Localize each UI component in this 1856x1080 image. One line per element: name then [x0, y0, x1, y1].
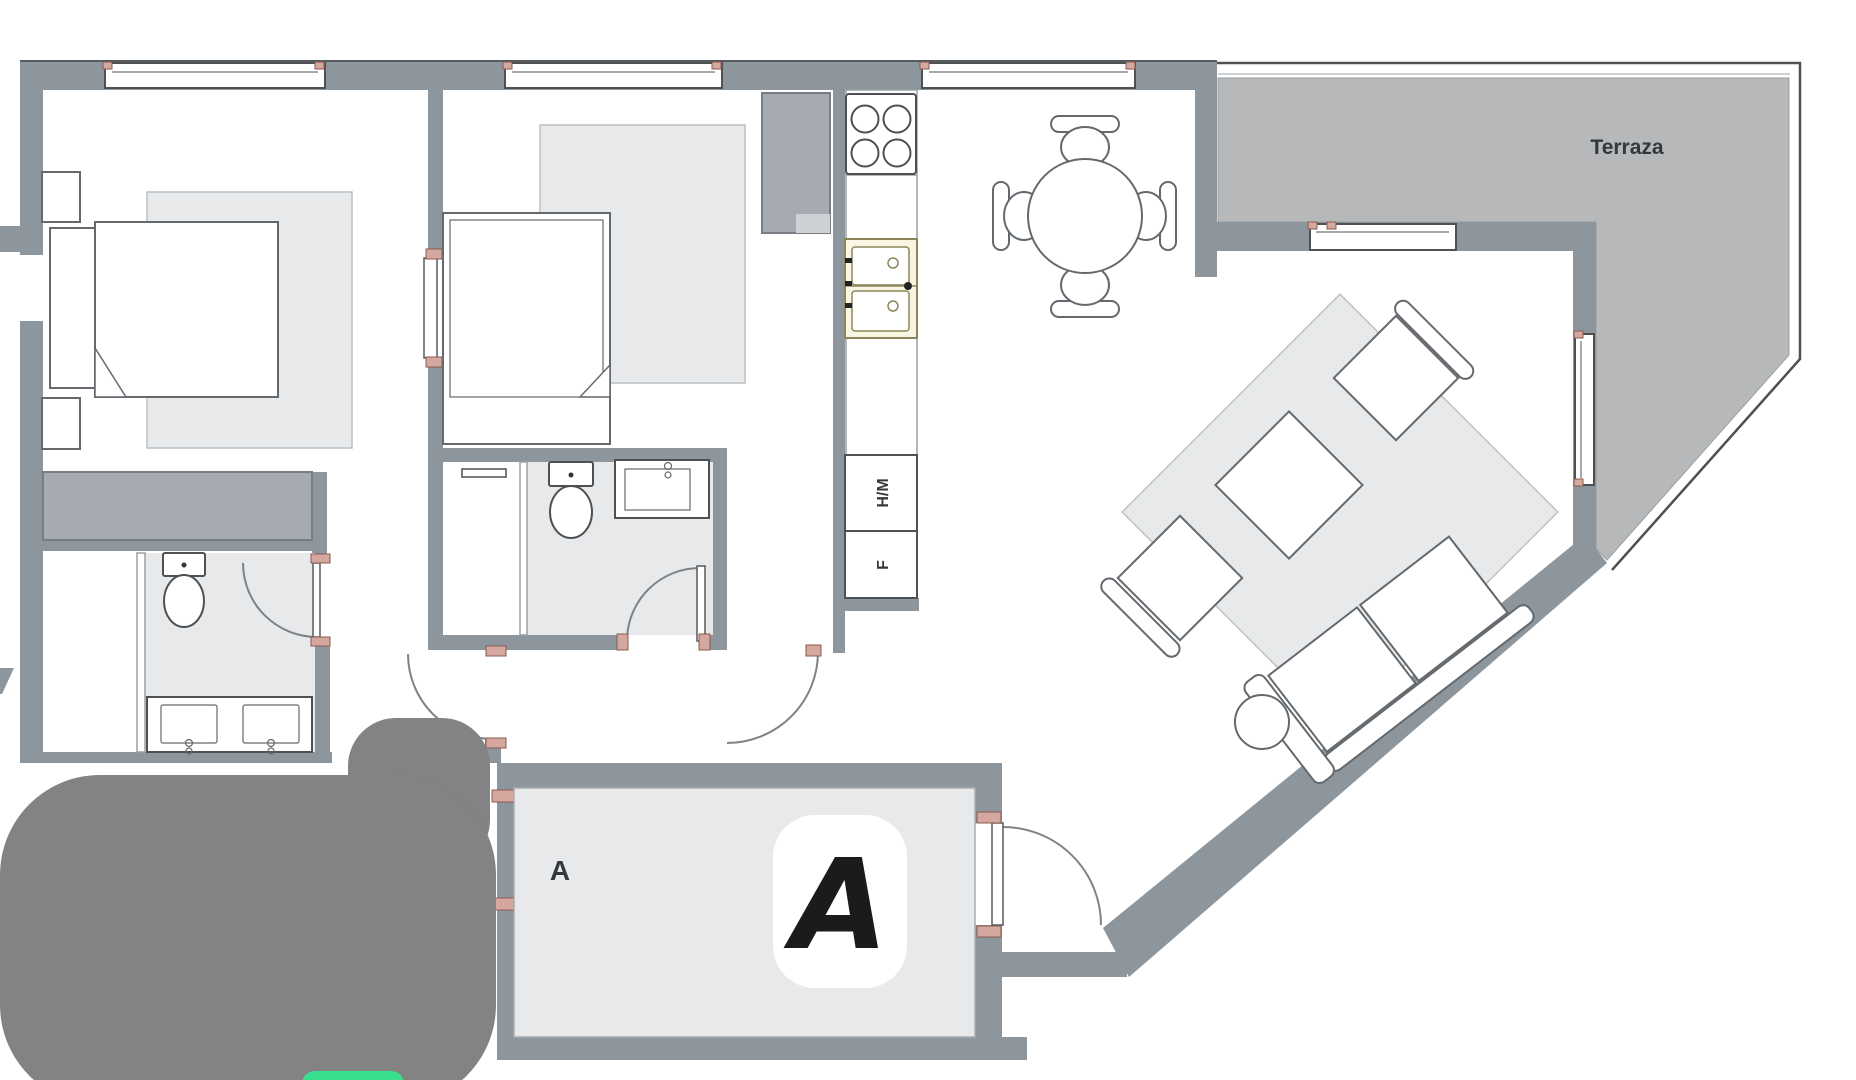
wall-bedrooms-upper	[428, 62, 443, 258]
wardrobe	[43, 472, 312, 540]
wall-left-fragment	[0, 668, 14, 694]
window-tick	[103, 62, 112, 69]
washer-label: H/M	[875, 478, 892, 507]
bathroom2-door-leaf	[697, 566, 705, 641]
burner	[852, 106, 879, 133]
window-tick	[1126, 62, 1135, 69]
window-tick	[1574, 479, 1583, 486]
terrace-label: Terraza	[1590, 136, 1663, 159]
burner	[852, 140, 879, 167]
burner	[884, 106, 911, 133]
wall-roomA-left	[497, 788, 514, 1060]
door-jamb	[492, 790, 514, 802]
wall-roomA-top	[497, 763, 1002, 788]
sink-tap-mark	[845, 258, 852, 263]
wall-terrace-left	[1195, 68, 1217, 277]
wall-kitchen-left	[833, 90, 845, 653]
shower-divider	[520, 462, 527, 635]
headboard	[50, 228, 96, 388]
shower-divider	[137, 553, 145, 752]
door-jamb	[977, 812, 1001, 823]
kitchen: H/M F	[845, 90, 917, 598]
door-jamb	[486, 646, 506, 656]
window-living-right	[1575, 334, 1594, 485]
closet-notch	[796, 214, 830, 233]
wall-kitchen-stub	[843, 598, 919, 611]
entry-door-leaf	[992, 823, 1003, 925]
dining-set	[993, 116, 1176, 317]
door-jamb	[617, 634, 628, 650]
wall-bath2-bottom	[428, 635, 625, 650]
door-jamb	[426, 357, 442, 367]
wall-left-stub	[0, 226, 22, 252]
wall-bed1-stub	[312, 472, 327, 562]
window-tick	[1308, 222, 1317, 229]
wall-bed1-bottom	[20, 540, 316, 551]
sink-tap-mark	[845, 281, 852, 286]
sink-tap-mark	[845, 303, 852, 308]
side-table	[1235, 695, 1289, 749]
nightstand	[42, 398, 80, 449]
window-bedroom1	[105, 63, 325, 88]
fridge-label: F	[875, 560, 892, 570]
window-tick	[503, 62, 512, 69]
room-a-label: A	[550, 855, 570, 886]
window-tick	[1327, 222, 1336, 229]
bathroom1-door-leaf	[313, 563, 320, 637]
double-vanity	[147, 697, 312, 754]
single-bed	[443, 213, 610, 444]
green-marker	[302, 1071, 404, 1080]
window-dining	[922, 63, 1135, 88]
door-jamb	[311, 637, 330, 646]
floor-plan: Terraza	[0, 0, 1856, 1080]
burner	[884, 140, 911, 167]
bedroom2	[443, 93, 830, 444]
window-tick	[315, 62, 324, 69]
wall-vestibule-bottom	[1002, 952, 1127, 977]
window-bedroom2	[505, 63, 722, 88]
bedroom-connecting-door-leaf	[424, 258, 437, 358]
nightstand	[42, 172, 80, 222]
dining-table	[1028, 159, 1142, 273]
door-jamb	[699, 634, 710, 650]
wall-bath2-right	[713, 448, 727, 650]
closet	[762, 93, 830, 233]
double-bed	[95, 222, 278, 397]
door-jamb	[977, 926, 1001, 937]
room-a-badge-letter: A	[783, 833, 889, 978]
mirror	[462, 469, 506, 477]
sink-faucet	[904, 282, 912, 290]
bedroom1	[42, 172, 352, 540]
wall-roomA-bottom	[497, 1037, 1027, 1060]
kitchen-sink	[845, 239, 917, 338]
wall-bath1-bottom	[20, 752, 332, 763]
door-jamb	[486, 738, 506, 748]
wall-bedrooms-lower	[428, 358, 443, 650]
redaction-blob	[0, 718, 496, 1080]
door-jamb	[426, 249, 442, 259]
window-tick	[1574, 331, 1583, 338]
kitchen-hall-door-arc	[727, 652, 818, 743]
toilet	[163, 553, 205, 627]
window-tick	[920, 62, 929, 69]
living-set	[1098, 294, 1558, 786]
toilet	[549, 462, 593, 538]
door-jamb	[806, 645, 821, 656]
room-a: A A	[514, 788, 975, 1037]
window-tick	[712, 62, 721, 69]
door-jamb	[311, 554, 330, 563]
wall-bath1-right	[315, 641, 330, 763]
entry-door-arc	[1003, 827, 1101, 925]
washbasin	[615, 460, 709, 518]
wall-left-upper	[20, 62, 43, 255]
